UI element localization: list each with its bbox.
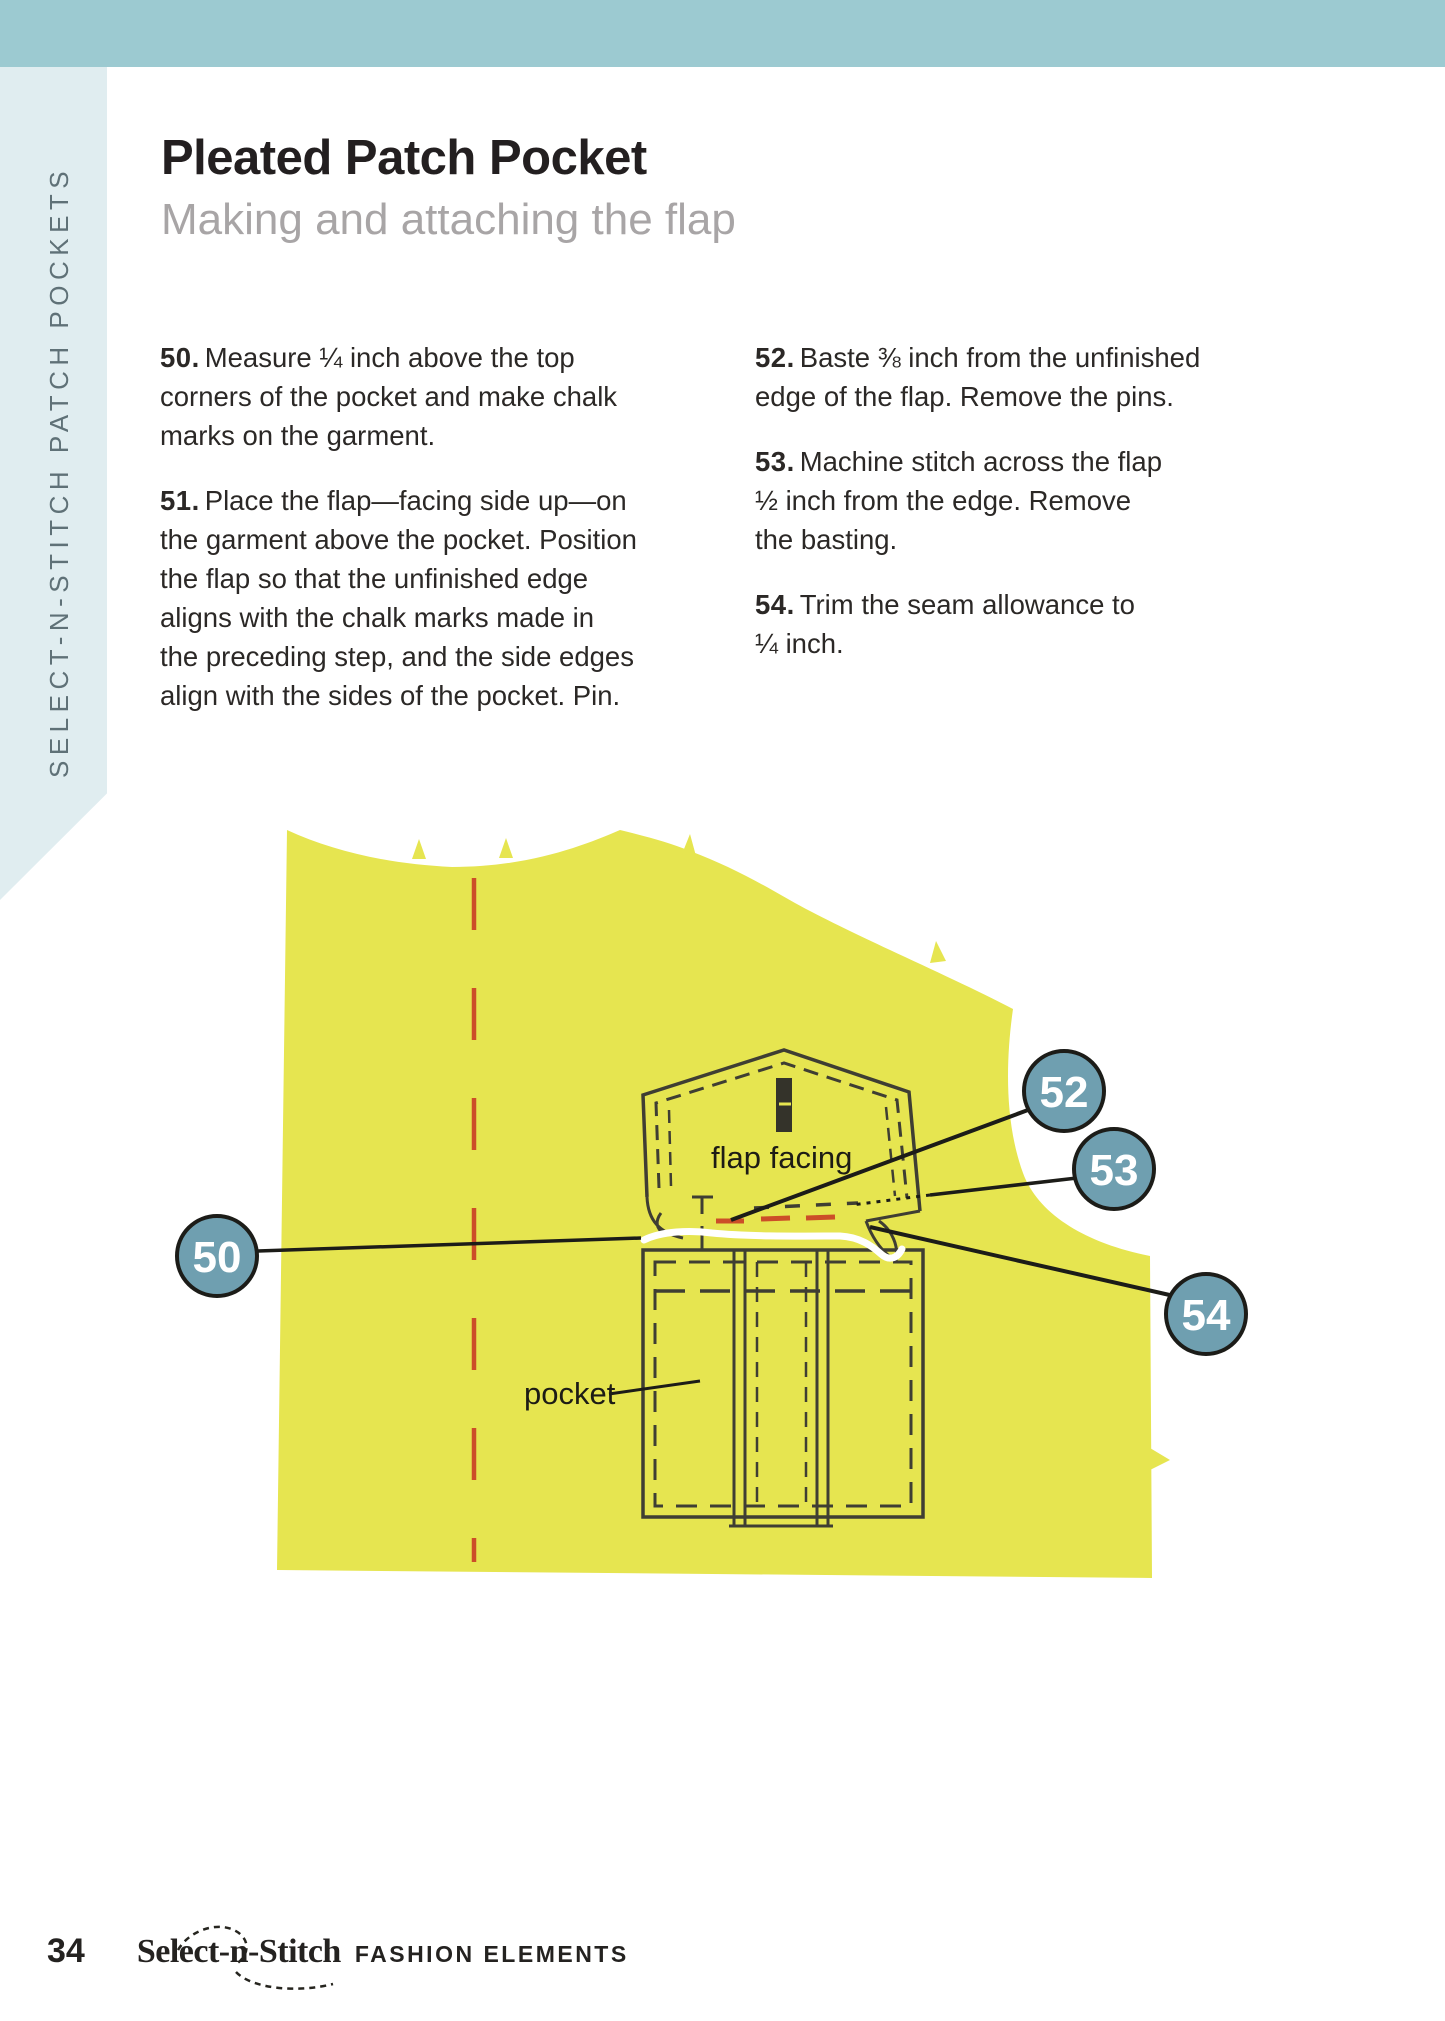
flap-facing-label: flap facing: [711, 1140, 852, 1175]
callout-50-number: 50: [193, 1233, 242, 1282]
callout-53: 53: [1074, 1129, 1154, 1209]
callout-54-number: 54: [1182, 1291, 1231, 1340]
callout-52: 52: [1024, 1051, 1104, 1131]
footer: 34 Select-n-Stitch FASHION ELEMENTS: [47, 1934, 629, 1969]
callout-53-number: 53: [1090, 1146, 1139, 1195]
sewing-diagram: 50 52 53 54 flap facing pocket: [0, 0, 1445, 2021]
pocket-label: pocket: [524, 1376, 616, 1411]
callout-54: 54: [1166, 1274, 1246, 1354]
callout-50: 50: [177, 1216, 257, 1296]
callout-52-number: 52: [1040, 1068, 1089, 1117]
page-number: 34: [47, 1934, 85, 1968]
brand-logo: Select-n-Stitch: [137, 1935, 341, 1969]
brand-suffix: FASHION ELEMENTS: [355, 1943, 629, 1966]
book-page: SELECT-N-STITCH PATCH POCKETS Pleated Pa…: [0, 0, 1445, 2021]
